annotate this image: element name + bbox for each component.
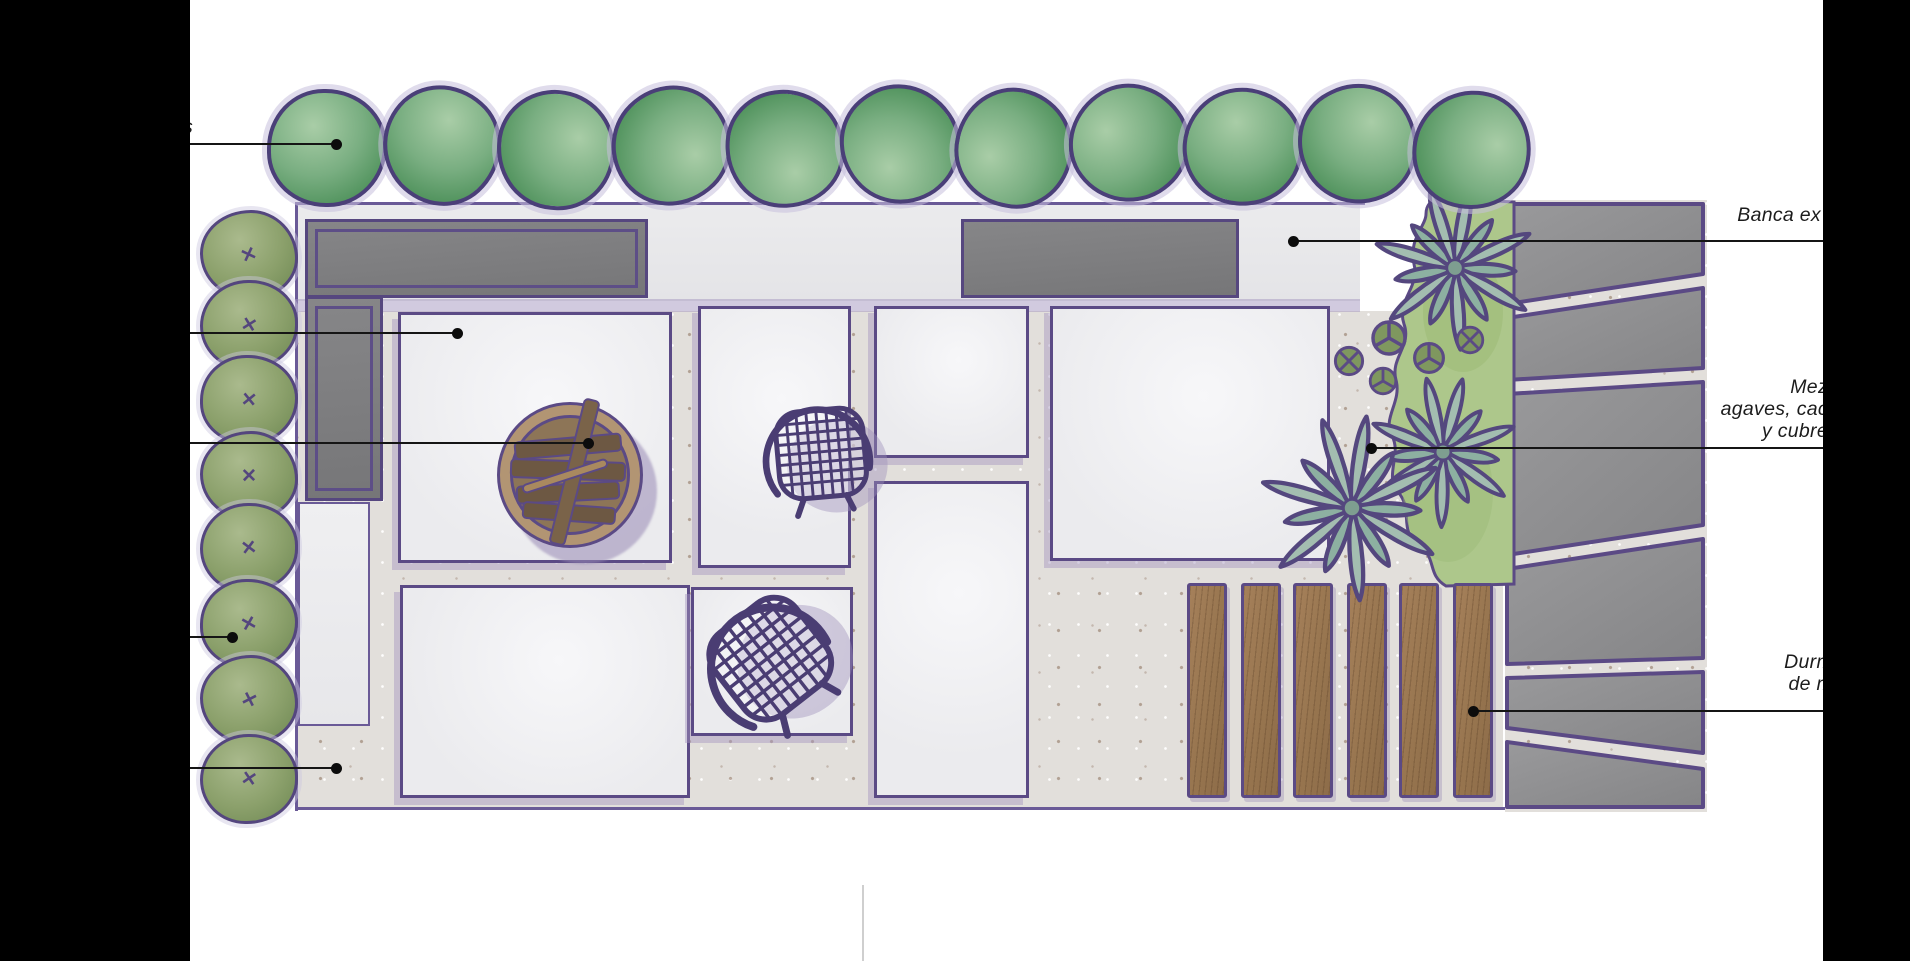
- bush-x-mark: ✕: [240, 536, 259, 561]
- annotation-dot: [583, 438, 594, 449]
- annotation-leader-line: [1371, 447, 1830, 449]
- annotation-leader-line: [190, 332, 457, 334]
- annotation-leader-line: [1293, 240, 1830, 242]
- label-durmientes: Durm de m: [1650, 651, 1833, 695]
- wood-sleeper: [1187, 583, 1227, 798]
- tree-icon: [1169, 74, 1317, 221]
- annotation-dot: [331, 139, 342, 150]
- annotation-leader-line: [1473, 710, 1830, 712]
- barrel-cactus-icon: [1367, 365, 1399, 397]
- bush-x-mark: ✕: [238, 687, 260, 714]
- hedge-bush-icon: ✕: [200, 734, 298, 824]
- barrel-cactus-icon: [1454, 324, 1486, 356]
- label-banca-exterior: Banca ex: [1600, 204, 1821, 226]
- stone-slab: [1507, 539, 1703, 664]
- wicker-chair-top: [750, 382, 895, 527]
- annotation-dot: [452, 328, 463, 339]
- paver-bottom-left: [400, 585, 690, 798]
- wood-sleeper: [1453, 583, 1493, 798]
- side-path-paver: [298, 502, 370, 726]
- paver-center-top: [874, 306, 1029, 458]
- plan-boundary-bottom: [295, 807, 1508, 810]
- annotation-dot: [227, 632, 238, 643]
- paver-center-tall: [874, 481, 1029, 798]
- barrel-cactus-icon: [1411, 340, 1447, 376]
- bottom-tick-mark: [862, 885, 864, 961]
- annotation-dot: [1468, 706, 1479, 717]
- bush-x-mark: ✕: [241, 464, 257, 487]
- annotation-leader-line: [190, 143, 336, 145]
- annotation-leader-line: [190, 636, 232, 638]
- wood-sleeper: [1347, 583, 1387, 798]
- wood-sleeper: [1293, 583, 1333, 798]
- bush-x-mark: ✕: [239, 766, 259, 792]
- stone-slab: [1507, 742, 1703, 807]
- tree-icon: [717, 82, 852, 216]
- bush-x-mark: ✕: [238, 241, 261, 268]
- letterbox-bar-left: [0, 0, 190, 961]
- bench-l-vertical: [305, 296, 383, 501]
- fire-pit: [497, 402, 643, 548]
- barrel-cactus-icon: [1369, 318, 1409, 358]
- letterbox-bar-right: [1823, 0, 1910, 961]
- annotation-leader-line: [190, 442, 588, 444]
- wood-sleeper: [1399, 583, 1439, 798]
- wood-sleeper: [1241, 583, 1281, 798]
- tree-icon: [944, 77, 1084, 219]
- annotation-leader-line: [190, 767, 336, 769]
- annotation-dot: [1288, 236, 1299, 247]
- tree-icon: [493, 86, 619, 214]
- barrel-cactus-icon: [1332, 344, 1366, 378]
- tree-icon: [267, 89, 387, 207]
- annotation-dot: [1366, 443, 1377, 454]
- bench-inner-line: [315, 229, 638, 288]
- bush-x-mark: ✕: [240, 388, 258, 413]
- bench-top-middle: [961, 219, 1239, 298]
- bench-l-horizontal: [305, 219, 648, 298]
- bush-x-mark: ✕: [239, 312, 260, 338]
- annotation-dot: [331, 763, 342, 774]
- garden-plan-canvas: s Banca ex Mez agaves, cac y cubre Durm …: [0, 0, 1910, 961]
- hedge-bush-icon: ✕: [200, 655, 298, 745]
- agave-plant-icon: [1246, 402, 1458, 614]
- label-mezcla-agaves: Mez agaves, cac y cubre: [1560, 376, 1828, 442]
- bush-x-mark: ✕: [238, 611, 259, 637]
